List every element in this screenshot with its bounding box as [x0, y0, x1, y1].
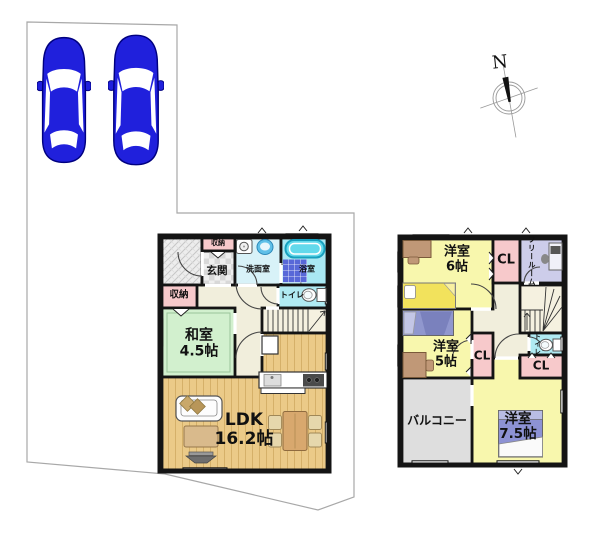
bed-icon-blue [403, 311, 454, 336]
car-icon [108, 35, 164, 164]
sink-icon [257, 240, 273, 255]
coffee-table-icon [184, 426, 218, 447]
japanese-room [162, 308, 235, 377]
balcony [402, 378, 472, 464]
bed-icon-purple [499, 411, 543, 458]
porch [162, 238, 202, 285]
closet-2 [472, 333, 493, 378]
compass-icon [474, 61, 546, 142]
floorplan-page: N 収納 玄関 洗面室 浴室 収納 トイレ 和室4.5帖 LDK16.2帖 洋室… [0, 0, 600, 535]
stairs-2f [520, 285, 563, 333]
bed-icon-yellow [403, 283, 456, 309]
storage-left [162, 285, 197, 308]
washer-icon [237, 240, 253, 254]
floor2-plan [398, 228, 566, 474]
closet-1 [493, 239, 520, 283]
closet-3 [520, 355, 563, 378]
car-icon [37, 38, 91, 163]
refrigerator-icon [262, 336, 278, 354]
toilet-icon-1f [302, 289, 326, 302]
toilet-icon-2f [540, 339, 562, 351]
floorplan-drawing [0, 0, 600, 535]
sofa-icon [176, 396, 222, 421]
entrance-storage [202, 238, 235, 251]
parking-area [37, 35, 164, 164]
floor1-plan [158, 226, 330, 472]
